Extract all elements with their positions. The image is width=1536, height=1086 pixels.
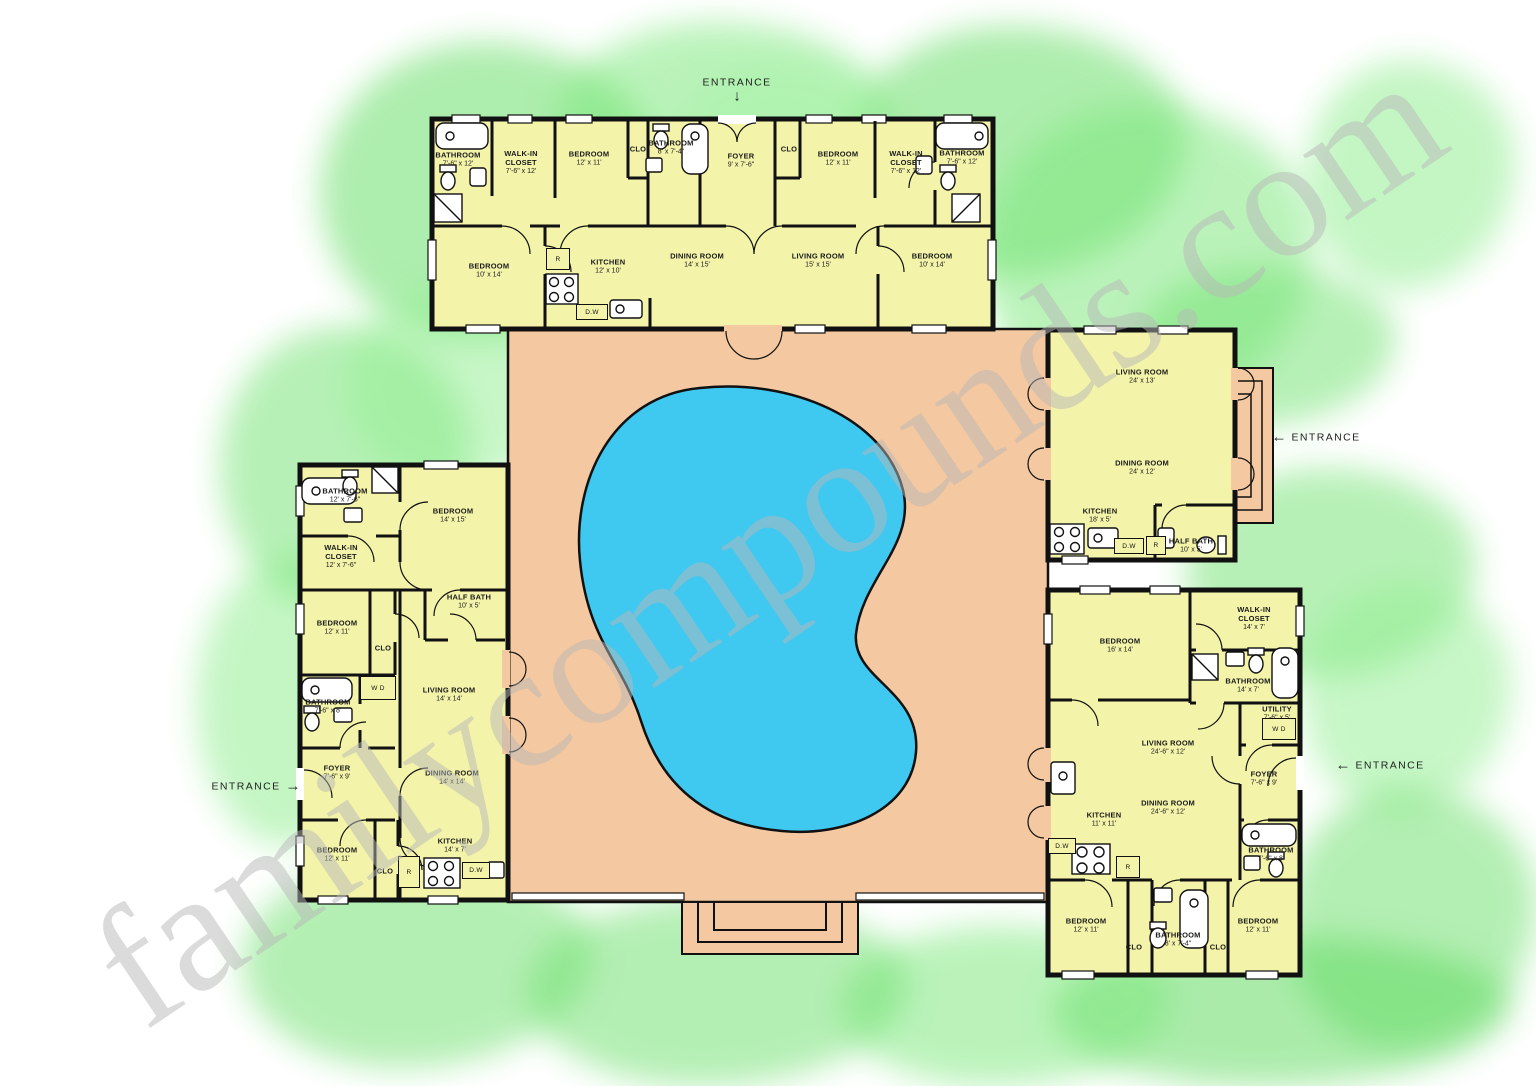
arrow-left-icon: ← bbox=[1272, 430, 1287, 445]
room-name: BEDROOM bbox=[304, 619, 370, 628]
room-label-bedroom: BEDROOM12' x 11' bbox=[304, 619, 370, 636]
entrance-text: ENTRANCE bbox=[1292, 431, 1361, 443]
room-name: CLO bbox=[368, 645, 398, 654]
room-dimension: 12' x 11' bbox=[803, 159, 873, 167]
room-dimension: 12' x 11' bbox=[304, 855, 370, 863]
room-label-kitchen: KITCHEN18' x 5' bbox=[1068, 507, 1132, 524]
room-label-bedroom: BEDROOM14' x 15' bbox=[418, 507, 488, 524]
room-dimension: 14' x 7' bbox=[1226, 624, 1282, 632]
room-name: DINING ROOM bbox=[1123, 799, 1213, 808]
appliance-box: W D bbox=[1262, 718, 1296, 740]
arrow-right-icon: → bbox=[285, 779, 300, 794]
room-label-clo: CLO bbox=[368, 645, 398, 654]
room-label-half-bath: HALF BATH10' x 5' bbox=[1159, 537, 1223, 554]
entrance-label: ←ENTRANCE bbox=[1336, 758, 1425, 773]
room-dimension: 7'-6" x 8' bbox=[1244, 855, 1298, 863]
room-name: BATHROOM bbox=[302, 698, 354, 707]
room-dimension: 12' x 11' bbox=[554, 159, 624, 167]
room-label-dining-room: DINING ROOM14' x 14' bbox=[412, 769, 492, 786]
room-label-clo: CLO bbox=[774, 146, 804, 155]
arrow-left-icon: ← bbox=[1336, 758, 1351, 773]
entrance-text: ENTRANCE bbox=[212, 780, 281, 792]
room-label-bedroom: BEDROOM12' x 11' bbox=[803, 150, 873, 167]
appliance-box: R bbox=[398, 856, 420, 888]
room-name: FOYER bbox=[1236, 770, 1292, 779]
room-name: LIVING ROOM bbox=[1123, 739, 1213, 748]
appliance-label: W D bbox=[371, 685, 385, 692]
room-label-bathroom: BATHROOM14' x 7' bbox=[1218, 677, 1278, 694]
appliance-label: D.W bbox=[1055, 843, 1069, 850]
room-dimension: 16' x 14' bbox=[1085, 646, 1155, 654]
room-dimension: 10' x 5' bbox=[1159, 546, 1223, 554]
entrance-label: ENTRANCE↓ bbox=[703, 77, 772, 104]
room-dimension: 8' x 7'-4" bbox=[648, 148, 694, 156]
room-dimension: 10' x 5' bbox=[437, 602, 501, 610]
room-label-half-bath: HALF BATH10' x 5' bbox=[437, 593, 501, 610]
room-dimension: 14' x 7' bbox=[1218, 686, 1278, 694]
labels-layer: BATHROOM7'-6" x 12'WALK-IN CLOSET7'-6" x… bbox=[0, 0, 1536, 1086]
room-label-walk-in-closet: WALK-IN CLOSET12' x 7'-6" bbox=[314, 544, 368, 570]
room-name: DINING ROOM bbox=[412, 769, 492, 778]
arrow-down-icon: ↓ bbox=[733, 89, 741, 104]
room-name: LIVING ROOM bbox=[1097, 368, 1187, 377]
room-name: KITCHEN bbox=[573, 258, 643, 267]
room-name: KITCHEN bbox=[1074, 811, 1134, 820]
room-dimension: 12' x 10' bbox=[573, 267, 643, 275]
room-dimension: 15' x 15' bbox=[773, 261, 863, 269]
room-dimension: 7'-6" x 9' bbox=[309, 773, 365, 781]
room-dimension: 12' x 7'-6" bbox=[317, 496, 373, 504]
room-label-bedroom: BEDROOM16' x 14' bbox=[1085, 637, 1155, 654]
entrance-label: ENTRANCE→ bbox=[212, 779, 301, 794]
room-name: WALK-IN CLOSET bbox=[314, 544, 368, 562]
room-dimension: 12' x 7'-6" bbox=[314, 562, 368, 570]
room-name: WALK-IN CLOSET bbox=[1226, 606, 1282, 624]
entrance-text: ENTRANCE bbox=[1356, 759, 1425, 771]
room-label-bedroom: BEDROOM10' x 14' bbox=[454, 262, 524, 279]
room-dimension: 7'-6" x 8' bbox=[302, 707, 354, 715]
room-name: FOYER bbox=[711, 152, 771, 161]
room-name: HALF BATH bbox=[437, 593, 501, 602]
room-label-foyer: FOYER9' x 7'-6" bbox=[711, 152, 771, 169]
appliance-box: D.W bbox=[1048, 838, 1076, 854]
room-name: DINING ROOM bbox=[1097, 459, 1187, 468]
room-name: BEDROOM bbox=[454, 262, 524, 271]
room-name: CLO bbox=[774, 146, 804, 155]
room-name: BATHROOM bbox=[1152, 931, 1204, 940]
room-dimension: 10' x 14' bbox=[454, 271, 524, 279]
room-name: BEDROOM bbox=[1085, 637, 1155, 646]
appliance-label: R bbox=[556, 256, 561, 263]
appliance-label: R bbox=[1126, 864, 1131, 871]
entrance-label: ←ENTRANCE bbox=[1272, 430, 1361, 445]
room-name: HALF BATH bbox=[1159, 537, 1223, 546]
room-dimension: 24'-6" x 12' bbox=[1123, 748, 1213, 756]
room-label-dining-room: DINING ROOM24' x 12' bbox=[1097, 459, 1187, 476]
room-label-bathroom: BATHROOM7'-6" x 12' bbox=[431, 151, 485, 168]
room-dimension: 10' x 14' bbox=[897, 261, 967, 269]
floor-plan-canvas: BATHROOM7'-6" x 12'WALK-IN CLOSET7'-6" x… bbox=[0, 0, 1536, 1086]
room-label-bedroom: BEDROOM12' x 11' bbox=[1053, 917, 1119, 934]
room-name: BEDROOM bbox=[897, 252, 967, 261]
room-name: CLO bbox=[370, 868, 400, 877]
room-dimension: 14' x 7' bbox=[423, 846, 487, 854]
appliance-label: R bbox=[1154, 542, 1159, 549]
room-dimension: 14' x 14' bbox=[409, 695, 489, 703]
room-label-walk-in-closet: WALK-IN CLOSET7'-6" x 12' bbox=[496, 150, 546, 176]
room-label-bathroom: BATHROOM7'-6" x 8' bbox=[302, 698, 354, 715]
room-label-kitchen: KITCHEN14' x 7' bbox=[423, 837, 487, 854]
room-dimension: 8' x 7'-4" bbox=[1152, 940, 1204, 948]
room-label-dining-room: DINING ROOM14' x 15' bbox=[652, 252, 742, 269]
room-dimension: 7'-6" x 9' bbox=[1236, 779, 1292, 787]
room-dimension: 14' x 14' bbox=[412, 778, 492, 786]
room-name: BEDROOM bbox=[554, 150, 624, 159]
room-name: CLO bbox=[1119, 944, 1149, 953]
appliance-box: R bbox=[1146, 536, 1166, 555]
room-dimension: 11' x 11' bbox=[1074, 820, 1134, 828]
room-label-living-room: LIVING ROOM24'-6" x 12' bbox=[1123, 739, 1213, 756]
room-name: FOYER bbox=[309, 764, 365, 773]
room-dimension: 12' x 11' bbox=[304, 628, 370, 636]
appliance-box: D.W bbox=[576, 304, 608, 320]
room-label-bedroom: BEDROOM12' x 11' bbox=[1225, 917, 1291, 934]
room-name: BATHROOM bbox=[935, 149, 989, 158]
room-label-clo: CLO bbox=[1119, 944, 1149, 953]
room-dimension: 7'-6" x 12' bbox=[935, 158, 989, 166]
room-label-bathroom: BATHROOM8' x 7'-4" bbox=[648, 139, 694, 156]
room-name: BEDROOM bbox=[304, 846, 370, 855]
room-label-kitchen: KITCHEN11' x 11' bbox=[1074, 811, 1134, 828]
appliance-label: D.W bbox=[585, 309, 599, 316]
room-label-kitchen: KITCHEN12' x 10' bbox=[573, 258, 643, 275]
room-label-foyer: FOYER7'-6" x 9' bbox=[1236, 770, 1292, 787]
appliance-label: D.W bbox=[1122, 543, 1136, 550]
room-dimension: 24'-6" x 12' bbox=[1123, 808, 1213, 816]
room-label-dining-room: DINING ROOM24'-6" x 12' bbox=[1123, 799, 1213, 816]
room-dimension: 24' x 13' bbox=[1097, 377, 1187, 385]
room-name: KITCHEN bbox=[423, 837, 487, 846]
room-name: WALK-IN CLOSET bbox=[496, 150, 546, 168]
room-label-bathroom: BATHROOM7'-6" x 8' bbox=[1244, 846, 1298, 863]
room-name: DINING ROOM bbox=[652, 252, 742, 261]
room-label-bedroom: BEDROOM12' x 11' bbox=[304, 846, 370, 863]
room-name: BATHROOM bbox=[1218, 677, 1278, 686]
room-name: KITCHEN bbox=[1068, 507, 1132, 516]
room-dimension: 14' x 15' bbox=[652, 261, 742, 269]
room-dimension: 12' x 11' bbox=[1053, 926, 1119, 934]
room-name: BEDROOM bbox=[803, 150, 873, 159]
room-dimension: 12' x 11' bbox=[1225, 926, 1291, 934]
room-dimension: 7'-6" x 12' bbox=[496, 168, 546, 176]
room-name: WALK-IN CLOSET bbox=[881, 150, 931, 168]
room-label-bathroom: BATHROOM8' x 7'-4" bbox=[1152, 931, 1204, 948]
room-label-living-room: LIVING ROOM24' x 13' bbox=[1097, 368, 1187, 385]
room-dimension: 7'-6" x 12' bbox=[431, 160, 485, 168]
room-name: BATHROOM bbox=[1244, 846, 1298, 855]
room-dimension: 14' x 15' bbox=[418, 516, 488, 524]
appliance-box: D.W bbox=[1114, 538, 1144, 554]
room-label-walk-in-closet: WALK-IN CLOSET14' x 7' bbox=[1226, 606, 1282, 632]
appliance-box: D.W bbox=[462, 862, 490, 879]
room-label-walk-in-closet: WALK-IN CLOSET7'-6" x 12' bbox=[881, 150, 931, 176]
room-name: BATHROOM bbox=[317, 487, 373, 496]
room-dimension: 9' x 7'-6" bbox=[711, 161, 771, 169]
room-label-clo: CLO bbox=[370, 868, 400, 877]
room-label-clo: CLO bbox=[1203, 944, 1233, 953]
room-name: BEDROOM bbox=[418, 507, 488, 516]
room-name: BEDROOM bbox=[1053, 917, 1119, 926]
room-name: BATHROOM bbox=[431, 151, 485, 160]
room-label-foyer: FOYER7'-6" x 9' bbox=[309, 764, 365, 781]
room-label-living-room: LIVING ROOM14' x 14' bbox=[409, 686, 489, 703]
appliance-label: D.W bbox=[469, 867, 483, 874]
room-label-bathroom: BATHROOM7'-6" x 12' bbox=[935, 149, 989, 166]
appliance-box: R bbox=[546, 248, 570, 270]
room-label-bathroom: BATHROOM12' x 7'-6" bbox=[317, 487, 373, 504]
room-label-bedroom: BEDROOM12' x 11' bbox=[554, 150, 624, 167]
room-dimension: 18' x 5' bbox=[1068, 516, 1132, 524]
appliance-box: W D bbox=[360, 676, 396, 700]
room-name: LIVING ROOM bbox=[409, 686, 489, 695]
room-name: UTILITY bbox=[1252, 705, 1302, 714]
room-name: CLO bbox=[1203, 944, 1233, 953]
appliance-box: R bbox=[1116, 856, 1140, 878]
appliance-label: W D bbox=[1272, 726, 1286, 733]
room-dimension: 24' x 12' bbox=[1097, 468, 1187, 476]
room-name: BATHROOM bbox=[648, 139, 694, 148]
appliance-label: R bbox=[407, 869, 412, 876]
room-name: BEDROOM bbox=[1225, 917, 1291, 926]
room-name: LIVING ROOM bbox=[773, 252, 863, 261]
room-label-bedroom: BEDROOM10' x 14' bbox=[897, 252, 967, 269]
room-dimension: 7'-6" x 12' bbox=[881, 168, 931, 176]
room-label-living-room: LIVING ROOM15' x 15' bbox=[773, 252, 863, 269]
